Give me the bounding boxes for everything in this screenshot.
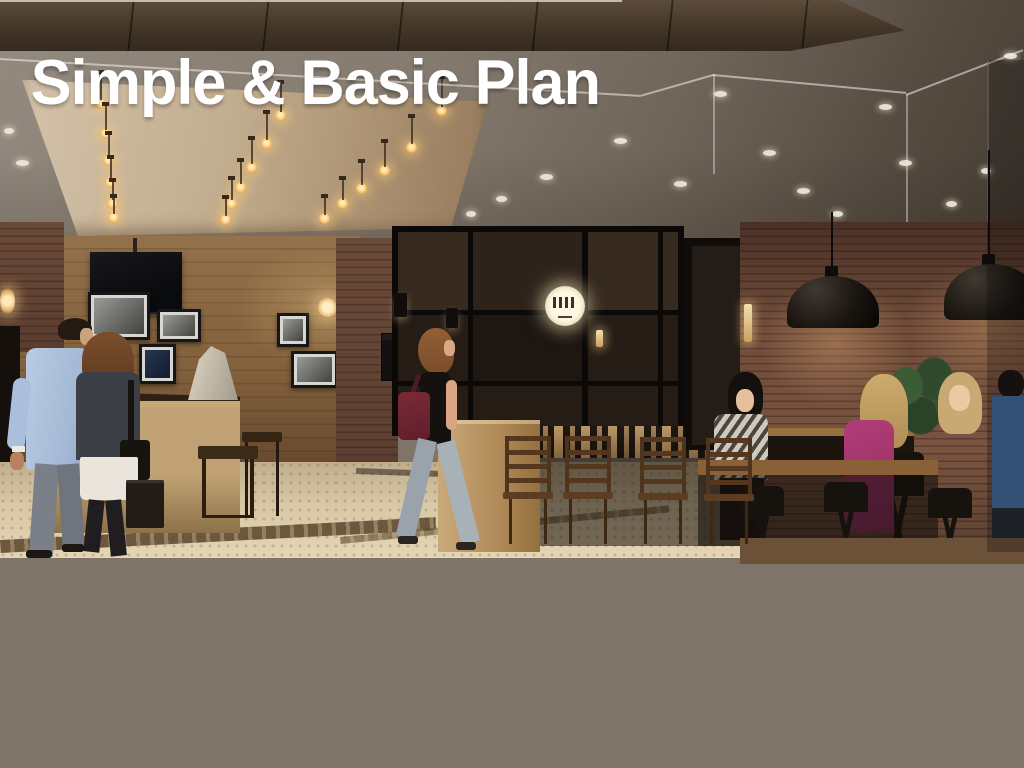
edison-bulb (226, 198, 237, 209)
dining-floor (740, 538, 1024, 564)
shoe (398, 536, 418, 544)
recessed-spotlight (540, 174, 553, 180)
partition-mullion (582, 226, 588, 436)
partition-mullion (392, 310, 684, 315)
chair-legs (644, 500, 682, 544)
bar-stool (198, 446, 258, 518)
recessed-spotlight (16, 160, 29, 166)
pendant-cord (831, 212, 833, 270)
cylinder-lamp (394, 293, 407, 317)
shoe (26, 550, 52, 558)
partition-pane (398, 232, 468, 310)
glass-edge-line (906, 94, 908, 226)
wooden-counter-chair (565, 436, 611, 544)
tote-bag (126, 480, 164, 528)
chair-legs (509, 499, 547, 544)
chair-back (928, 488, 972, 518)
recessed-spotlight (4, 128, 14, 134)
recessed-spotlight (879, 104, 892, 110)
photo-frame (291, 351, 338, 388)
chair-seat (503, 492, 553, 499)
pants-leg (29, 463, 59, 556)
recessed-spotlight (674, 181, 687, 187)
edison-bulb (108, 212, 119, 223)
edison-bulb (220, 214, 231, 225)
chair-back (640, 437, 686, 493)
center-walking-woman (396, 328, 476, 554)
floor-highlight-line (0, 0, 622, 2)
wooden-counter-chair (505, 436, 551, 544)
round-wall-sconce (318, 298, 337, 317)
wooden-counter-chair (706, 438, 752, 544)
partition-mullion (392, 226, 684, 232)
edison-bulb (246, 162, 257, 173)
shoulder-bag (398, 392, 430, 440)
standing-lamp (744, 304, 752, 342)
partition-mullion (658, 226, 663, 436)
plan-promo-image: Simple & Basic Plan ～ 朝食無料 ～ (0, 0, 1024, 768)
stool-seat (242, 432, 282, 442)
edison-bulb (261, 138, 272, 149)
recessed-spotlight (763, 150, 776, 156)
photo-frame (277, 313, 309, 347)
chair-seat (638, 493, 688, 500)
chair-back (824, 482, 868, 512)
chair-back (706, 438, 752, 494)
face (949, 385, 970, 411)
recessed-spotlight (797, 188, 810, 194)
cylinder-lamp (446, 308, 458, 328)
arm (446, 380, 457, 430)
edison-bulb (337, 198, 348, 209)
small-wall-lamp (596, 330, 603, 347)
glass-reflection-shade (987, 60, 1024, 552)
recessed-spotlight (714, 91, 727, 97)
chair-legs (569, 499, 607, 544)
shoe (456, 542, 476, 550)
stool-legs (202, 459, 254, 518)
edison-bulb (235, 182, 246, 193)
recessed-spotlight (946, 201, 957, 207)
leg (83, 499, 104, 552)
recessed-spotlight (614, 138, 627, 144)
recessed-spotlight (466, 211, 476, 217)
face (736, 389, 754, 412)
hand (10, 452, 24, 470)
wall-sconce-light (0, 288, 15, 314)
chair-seat (563, 492, 613, 499)
chair-seat (704, 494, 754, 501)
partition-pane (588, 232, 678, 310)
stool-seat (198, 446, 258, 459)
jeans-leg (436, 440, 480, 546)
seated-woman-blonde (938, 372, 984, 436)
chair-back (565, 436, 611, 492)
chair-legs (710, 501, 748, 544)
chair-back (505, 436, 551, 492)
banner-title-en: Simple & Basic Plan (31, 47, 600, 119)
edison-bulb (379, 165, 390, 176)
leg (105, 499, 127, 556)
recessed-spotlight (496, 196, 507, 202)
wooden-counter-chair (640, 437, 686, 544)
face (444, 340, 455, 356)
bag-strap (128, 380, 134, 446)
recessed-spotlight (832, 211, 843, 217)
edison-bulb (356, 183, 367, 194)
walking-woman (70, 332, 170, 556)
glass-edge-line (713, 74, 715, 174)
restaurant-logo-sign (545, 286, 585, 326)
edison-bulb (319, 213, 330, 224)
edison-bulb (406, 142, 417, 153)
jeans-leg (396, 438, 437, 540)
